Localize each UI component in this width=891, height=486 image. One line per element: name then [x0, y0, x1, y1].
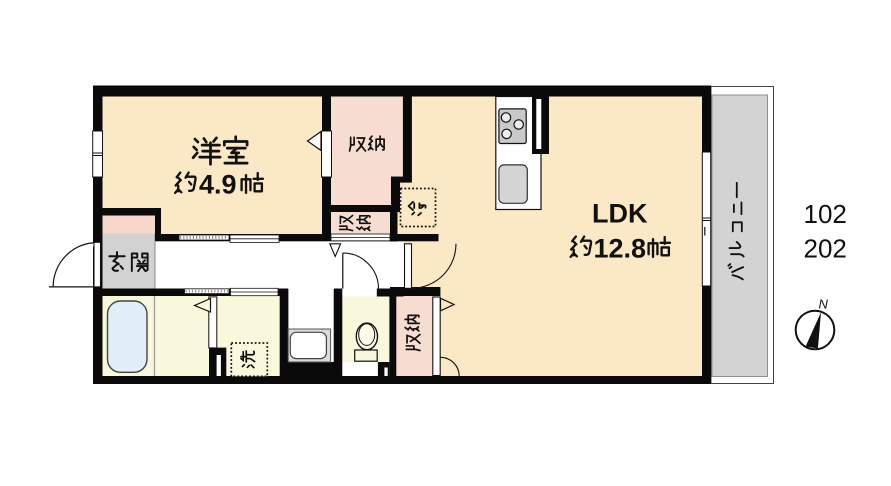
svg-text:LDK: LDK: [592, 199, 648, 229]
svg-text:N: N: [819, 297, 829, 312]
svg-text:102: 102: [804, 199, 847, 229]
svg-text:202: 202: [804, 234, 847, 264]
svg-text:12.8: 12.8: [594, 234, 647, 264]
svg-text:4.9: 4.9: [199, 170, 237, 200]
